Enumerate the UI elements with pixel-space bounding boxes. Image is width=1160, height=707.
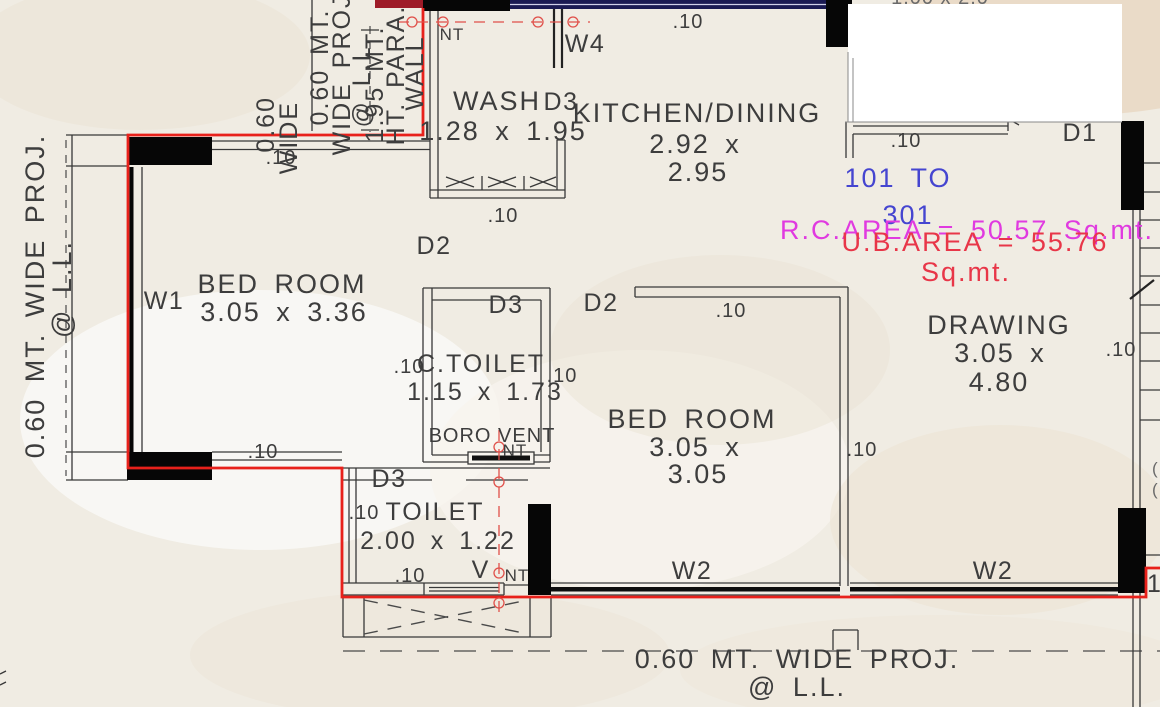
window-w1-glass [130,167,134,452]
room-dims-bed2-1: 3.05 x [649,432,741,462]
door-label-d3-toilet: D3 [372,465,407,493]
room-label-kitchen: KITCHEN/DINING [573,98,822,128]
window-label-w2-bed: W2 [672,557,713,585]
door-label-d1: D1 [1063,119,1098,147]
flat-range-line1: 101 TO [844,163,951,193]
dim-ten: .10 [349,502,380,524]
nt-label-top: NT [440,25,465,44]
window-w2-bed-glass [551,587,840,592]
dim-ten: .10 [673,11,704,33]
column [423,0,510,11]
window-w4-glass [554,2,562,68]
dim-ten: .10 [847,439,878,461]
room-dims-kitchen-1: 2.92 x [649,129,741,159]
room-dims-ctoilet: 1.15 x 1.73 [407,378,563,406]
column [528,504,551,595]
clipped-paren: ( [1152,480,1159,499]
column [1118,508,1146,593]
window-label-w4: W4 [565,30,606,58]
room-dims-drawing-2: 4.80 [969,367,1030,397]
bottom-proj-note-2: @ L.L. [748,672,846,702]
dim-ten: .10 [488,205,519,227]
window-label-w1: W1 [144,287,185,315]
left-proj-note-2: @ L.L. [47,240,77,338]
room-dims-bed1: 3.05 x 3.36 [200,297,368,327]
nt-label-boro: NT [503,441,528,460]
door-label-d2-passage: D2 [417,232,452,260]
left-proj-note-1: 0.60 MT. WIDE PROJ. [20,134,50,459]
room-label-bed1: BED ROOM [197,269,366,299]
column [127,137,212,165]
redaction-box [845,4,1122,122]
room-label-drawing: DRAWING [927,310,1071,340]
room-dims-kitchen-2: 2.95 [668,157,729,187]
bottom-proj-note-1: 0.60 MT. WIDE PROJ. [635,644,960,674]
floor-plan-canvas: 1.00 x 2.0 WASH 1.28 x 1.95 D3 NT W4 .10… [0,0,1160,707]
room-dims-drawing-1: 3.05 x [954,338,1046,368]
room-label-wash: WASH [453,86,541,116]
clipped-paren: ( [1152,459,1159,478]
room-label-ctoilet: C.TOILET [417,350,545,378]
clipped-top-text: 1.00 x 2.0 [891,0,989,9]
para-wall-note-3: WALL [401,35,429,110]
dim-ten: .10 [891,130,922,152]
door-label-d2-kitchen: D2 [584,289,619,317]
floor-plan-svg: 1.00 x 2.0 WASH 1.28 x 1.95 D3 NT W4 .10… [0,0,1160,707]
vent-v-label: V [472,556,491,584]
window-w2-drawing-glass [850,587,1118,592]
dim-ten: .10 [395,565,426,587]
dim-ten: .10 [547,365,578,387]
room-dims-bed2-2: 3.05 [668,459,729,489]
window-label-w2-drawing: W2 [973,557,1014,585]
boro-vent-label: BORO VENT [429,425,556,447]
ub-area-note-line1: U.B.AREA = 55.76 [842,227,1109,257]
top-beam [510,0,826,9]
topleft-clipped-note-2: WIDE [275,101,303,174]
ub-area-note-line2: Sq.mt. [921,257,1011,287]
door-label-d3-ctoilet: D3 [489,291,524,319]
vent-nt-label: NT [505,566,530,585]
dim-ten: .10 [716,300,747,322]
dim-ten: .10 [1106,339,1137,361]
room-label-bed2: BED ROOM [607,404,776,434]
column [1121,121,1144,210]
dim-ten: .10 [248,441,279,463]
room-dims-wash: 1.28 x 1.95 [419,116,587,146]
room-label-toilet: TOILET [385,498,484,526]
clipped-right-number: 15 [1147,570,1160,598]
room-dims-toilet: 2.00 x 1.22 [360,527,516,555]
column [127,452,212,480]
